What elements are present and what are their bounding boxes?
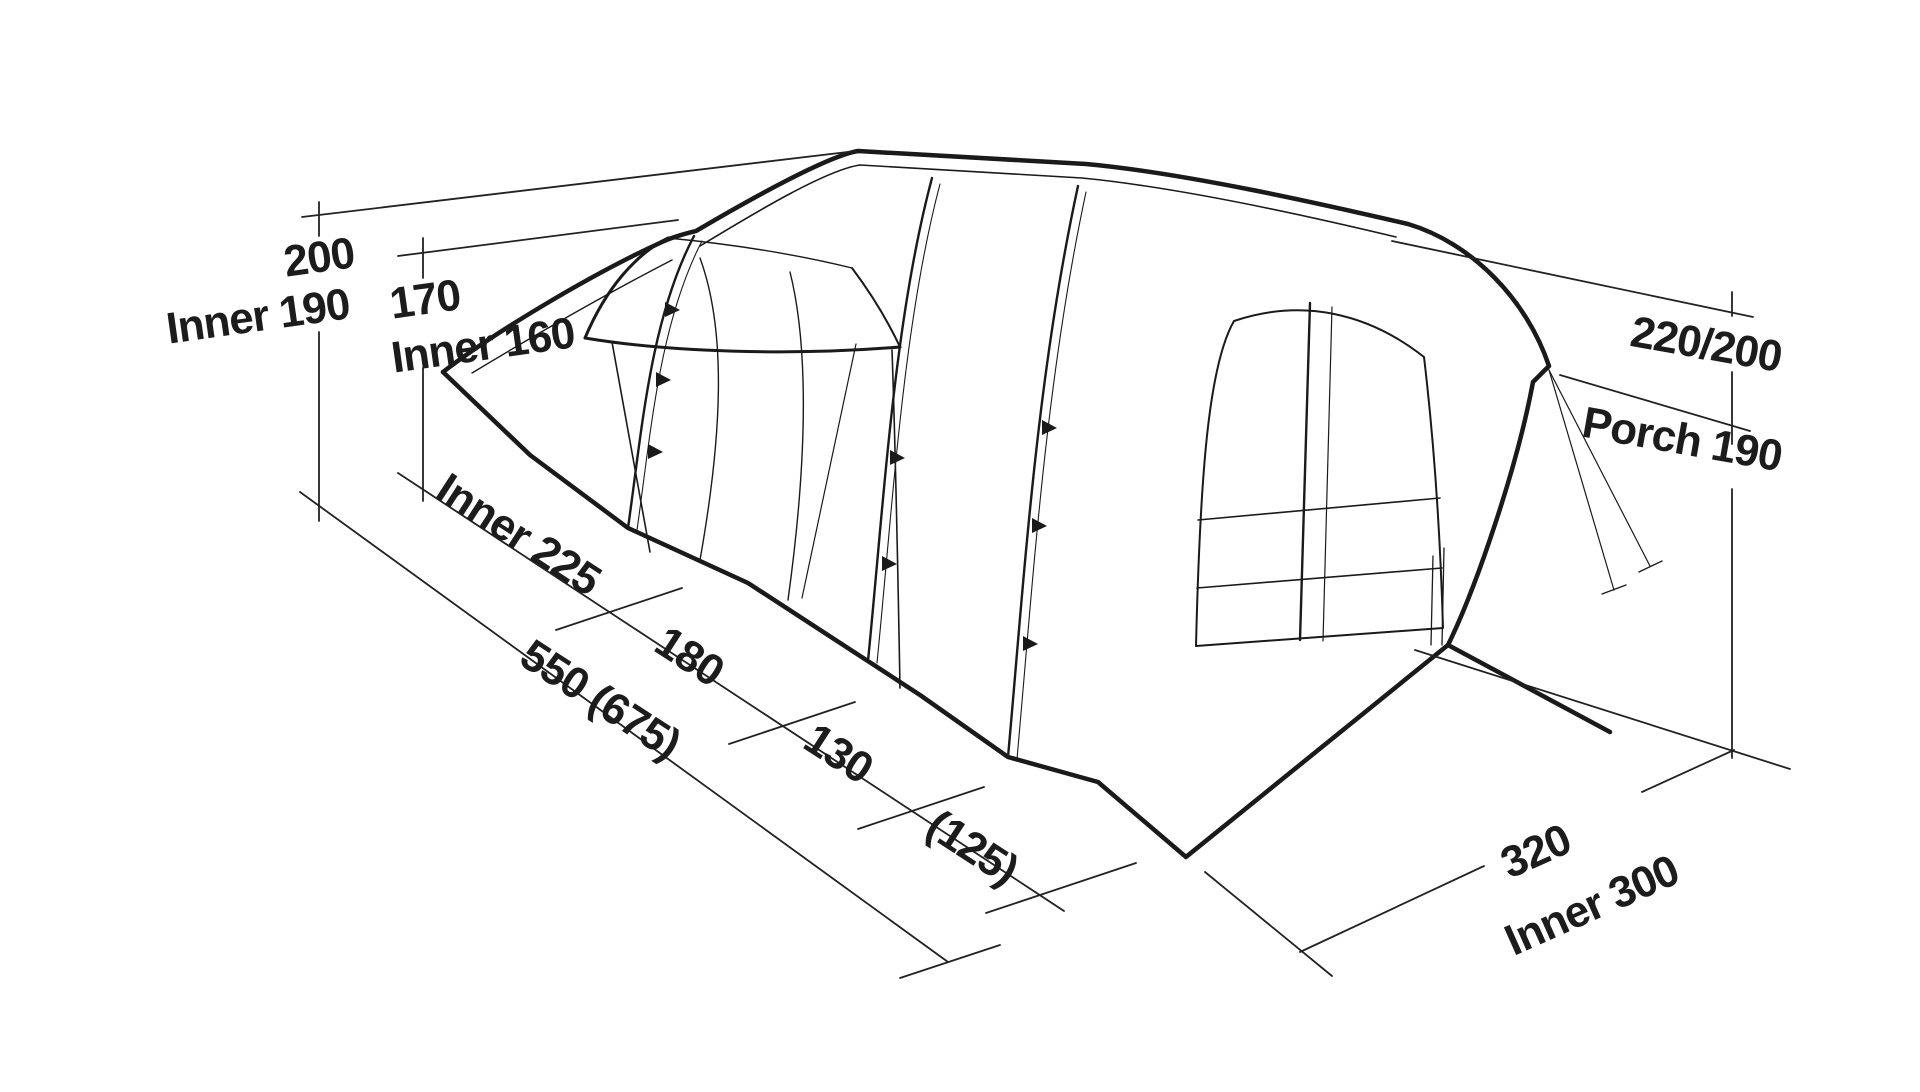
leader-height-porch xyxy=(1392,241,1753,317)
door-panel-seam-1 xyxy=(700,258,718,560)
porch-window-rail-2 xyxy=(1197,568,1442,588)
width-ext-left xyxy=(1205,872,1332,976)
guy-peg-1 xyxy=(1602,585,1626,594)
guy-peg-2 xyxy=(1639,561,1662,572)
tent-body xyxy=(443,151,1662,857)
porch-window-bar-vertical xyxy=(1300,303,1310,640)
canopy-left-edge xyxy=(585,238,668,338)
porch-window-frame xyxy=(1196,310,1443,646)
canopy-right-edge xyxy=(852,268,900,347)
arch-pole-3-sleeve xyxy=(1017,192,1086,759)
tent-silhouette-top xyxy=(443,151,1549,645)
tent-line-art xyxy=(0,0,1920,1092)
tent-dimension-diagram: 200 Inner 190 170 Inner 160 220/200 Porc… xyxy=(0,0,1920,1092)
leader-height-main xyxy=(302,151,856,217)
tent-base-outline xyxy=(443,372,1610,857)
leader-height-rear xyxy=(398,220,678,256)
porch-window-rail-1 xyxy=(1198,498,1440,520)
door-panel-seam-2 xyxy=(788,272,803,600)
porch-window-bar-vertical-2 xyxy=(1323,307,1332,641)
canopy-brace xyxy=(802,344,856,598)
pole-clips xyxy=(648,302,1057,651)
dim-height-main-outer: 200 xyxy=(281,231,357,284)
dim-height-rear-outer: 170 xyxy=(387,273,463,326)
total-length-end-tick xyxy=(900,945,1000,978)
porch-inner-base xyxy=(1186,658,1430,855)
canopy-strut-right xyxy=(892,350,900,688)
width-line-left xyxy=(1300,866,1484,952)
arch-pole-1-sleeve xyxy=(637,241,702,530)
width-line-right xyxy=(1642,750,1734,792)
arch-pole-2-sleeve xyxy=(877,184,940,663)
width-ext-right xyxy=(1415,650,1790,769)
ridge-seam xyxy=(700,165,1396,246)
canopy-front-edge xyxy=(585,338,900,352)
